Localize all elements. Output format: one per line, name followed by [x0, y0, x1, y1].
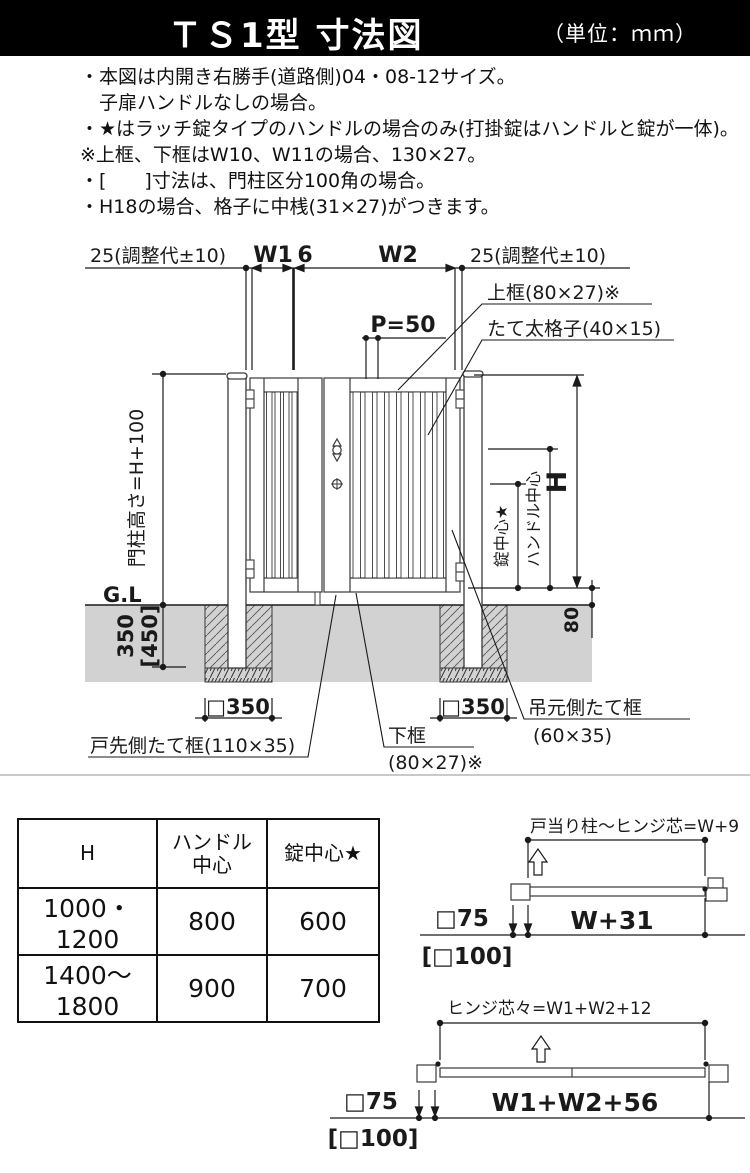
note-line: ・★はラッチ錠タイプのハンドルの場合のみ(打掛錠はハンドルと錠が一体)。 — [80, 116, 730, 142]
pitch-dimension — [362, 336, 446, 379]
hinge-post-plan — [709, 1065, 728, 1082]
open-direction-arrow-icon — [532, 1036, 550, 1062]
hinge-pivot — [703, 1061, 708, 1066]
hinge-post-plan — [708, 878, 723, 888]
dim-pitch: P=50 — [370, 313, 435, 338]
drop-rod — [315, 592, 320, 605]
dim-handle-center: ハンドル中心 — [524, 471, 543, 567]
note-line: ・H18の場合、格子に中桟(31×27)がつきます。 — [80, 194, 730, 220]
plan-view-diagrams: 戸当り柱～ヒンジ芯=W+9 □75 W+31 [□100] ヒンジ芯々=W1 — [0, 790, 750, 1173]
dim-w1: W1 — [253, 243, 293, 268]
note-line: ※上框、下框はW10、W11の場合、130×27。 — [80, 142, 730, 168]
dimension-sheet: { "header": { "title": "ＴＳ1型 寸法図", "unit… — [0, 0, 750, 1173]
unit-note: （単位：ｍｍ） — [543, 18, 697, 48]
section-divider — [0, 774, 750, 776]
dim-ground-clearance: 80 — [561, 607, 583, 633]
dim-post-height: 門柱高さ=H+100 — [126, 409, 148, 567]
hinge-post-plan — [706, 888, 727, 901]
plan-b-post-dim: □75 — [344, 1089, 398, 1115]
dim-lock-center: 錠中心★ — [492, 505, 511, 567]
dim-height-h: H — [542, 471, 573, 494]
plan-a-formula: 戸当り柱～ヒンジ芯=W+9 — [530, 817, 739, 837]
plan-a-width-dim: W+31 — [570, 906, 653, 935]
plan-single-gate: 戸当り柱～ヒンジ芯=W+9 □75 W+31 [□100] — [420, 817, 745, 970]
dim-embed-alt: [450] — [138, 604, 162, 667]
label-bottom-rail-2: (80×27)※ — [388, 752, 483, 774]
page-title: ＴＳ1型 寸法図 — [168, 8, 424, 57]
hinge-post-plan — [417, 1065, 436, 1082]
label-grille: たて太格子(40×15) — [487, 318, 661, 340]
label-hinge-stile-2: (60×35) — [533, 725, 612, 747]
note-line: ・本図は内開き右勝手(道路側)04・08-12サイズ。 — [80, 64, 730, 90]
gate-leaf-plan — [530, 887, 705, 896]
gate-elevation-drawing: 25(調整代±10) W1 6 W2 25(調整代±10) P=50 上框(80… — [0, 230, 750, 775]
label-top-rail: 上框(80×27)※ — [487, 282, 620, 304]
label-hinge-stile-1: 吊元側たて框 — [528, 697, 642, 719]
plan-b-width-dim: W1+W2+56 — [492, 1088, 659, 1117]
dim-footing-left: □350 — [206, 695, 270, 719]
dim-gap6: 6 — [297, 243, 312, 268]
main-door-panel — [324, 378, 460, 592]
dim-adjust-left: 25(調整代±10) — [90, 245, 226, 267]
hinge-pivot — [435, 1061, 440, 1066]
left-gate-post — [227, 373, 247, 668]
dim-w2: W2 — [378, 243, 418, 268]
plan-b-formula: ヒンジ芯々=W1+W2+12 — [447, 999, 652, 1019]
label-ground-level: G.L — [103, 583, 142, 607]
hinge-pivot — [702, 886, 707, 891]
label-latch-stile: 戸先側たて框(110×35) — [90, 735, 295, 757]
right-gate-post — [463, 371, 483, 668]
note-line: ・[ ]寸法は、門柱区分100角の場合。 — [80, 168, 730, 194]
dim-embed: 350 — [114, 614, 138, 658]
child-door-panel — [250, 378, 322, 592]
note-line: 子扉ハンドルなしの場合。 — [80, 90, 730, 116]
title-bar: ＴＳ1型 寸法図 （単位：ｍｍ） — [0, 0, 750, 56]
open-direction-arrow-icon — [529, 849, 547, 875]
plan-a-post-alt-dim: [□100] — [422, 944, 513, 970]
door-stop-post-plan — [511, 884, 530, 900]
notes-block: ・本図は内開き右勝手(道路側)04・08-12サイズ。 子扉ハンドルなしの場合。… — [80, 64, 730, 220]
label-bottom-rail-1: 下框 — [388, 725, 426, 747]
plan-a-post-dim: □75 — [435, 906, 489, 932]
plan-double-gate: ヒンジ芯々=W1+W2+12 □75 W1+W2+56 [□100] — [328, 999, 745, 1152]
dim-footing-right: □350 — [441, 695, 505, 719]
plan-b-post-alt-dim: [□100] — [328, 1126, 419, 1152]
dim-adjust-right: 25(調整代±10) — [470, 245, 606, 267]
